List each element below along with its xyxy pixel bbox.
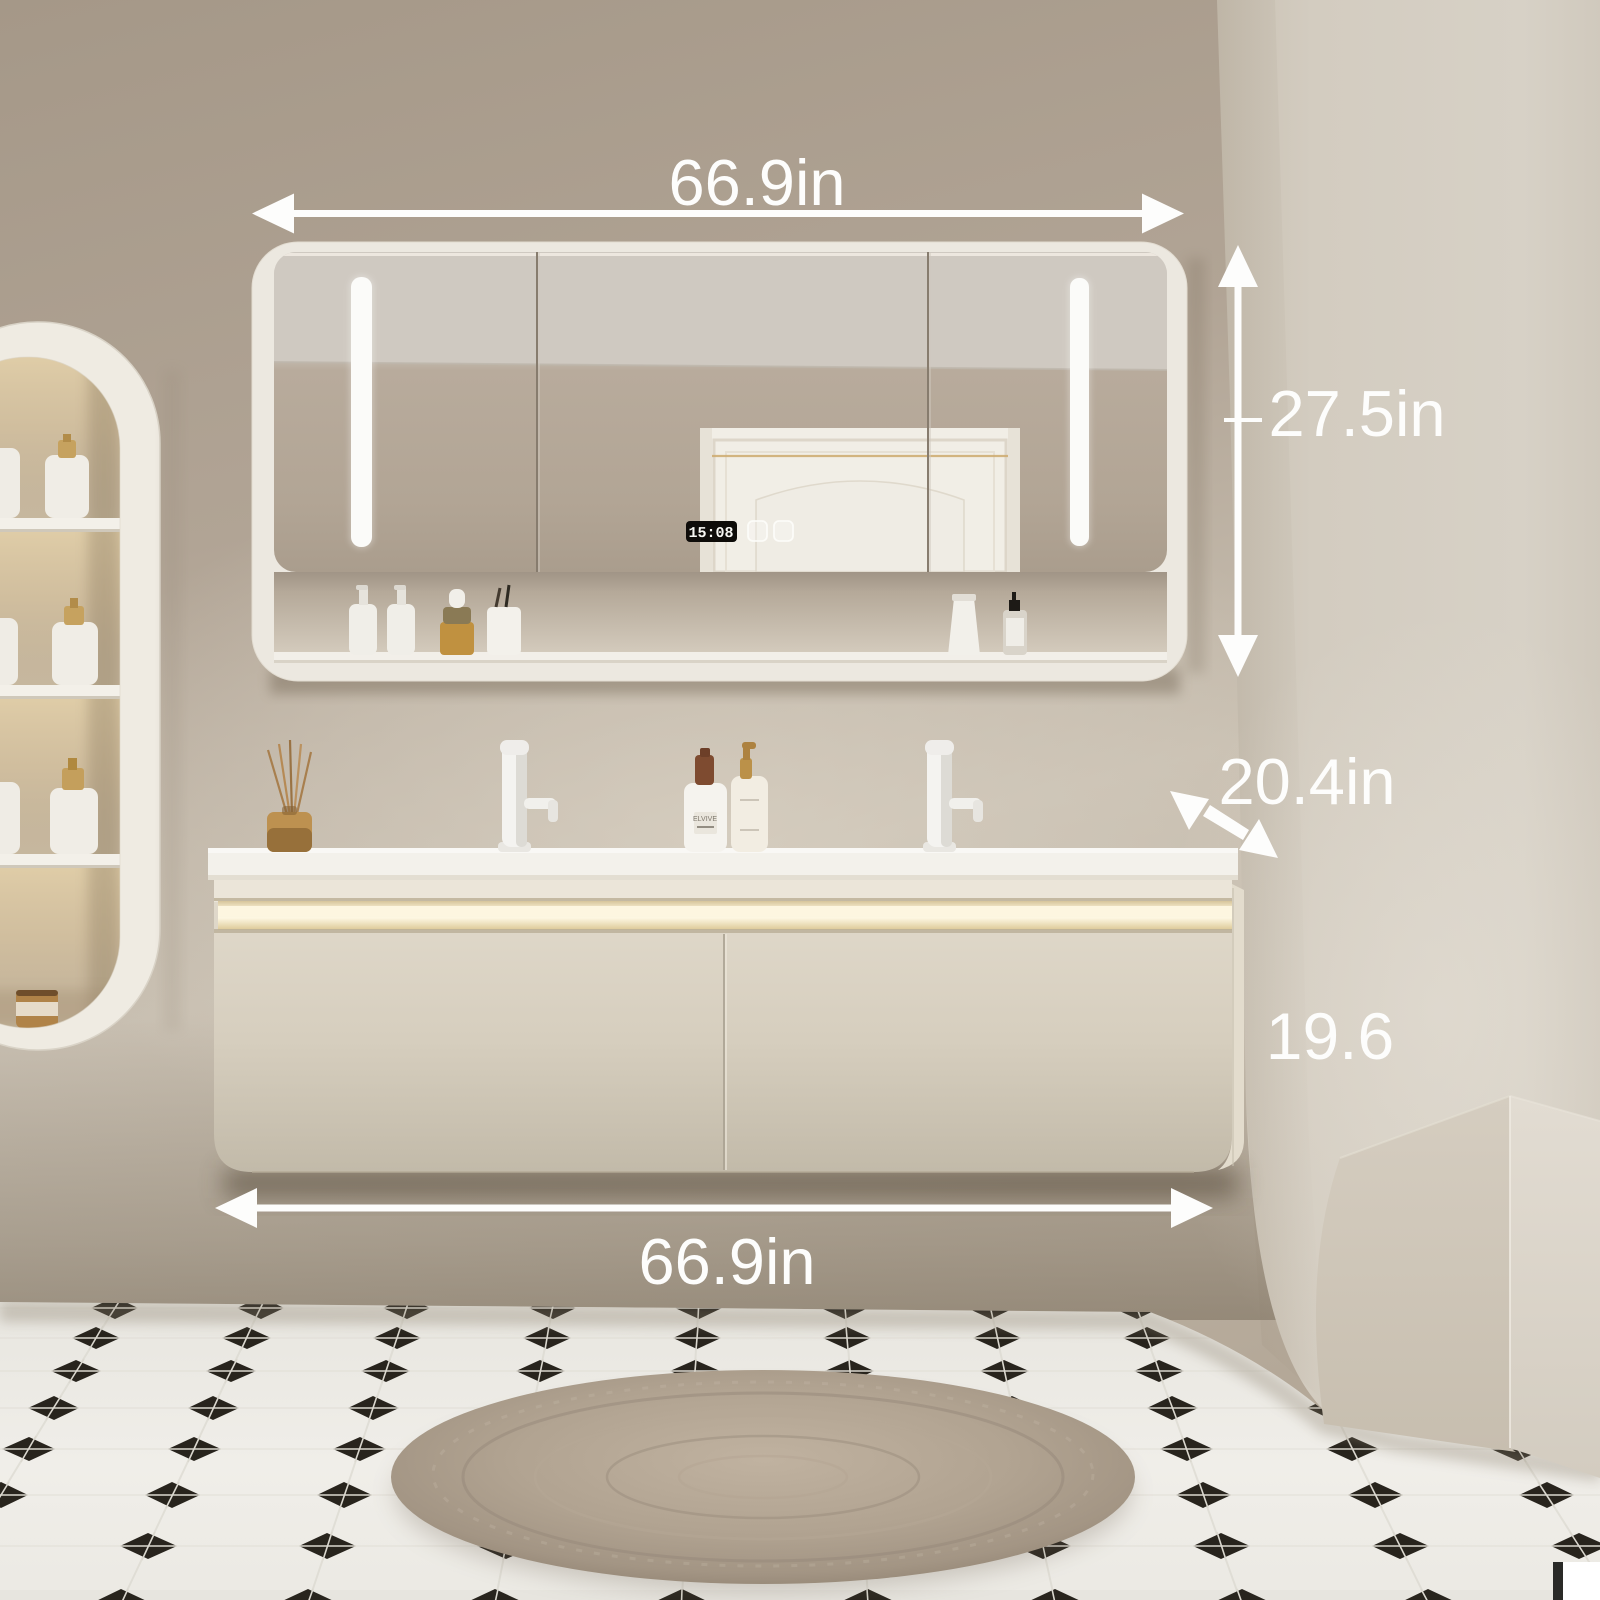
svg-text:ELVIVE: ELVIVE xyxy=(693,816,717,823)
svg-text:19.6: 19.6 xyxy=(1266,999,1394,1073)
svg-text:66.9in: 66.9in xyxy=(638,1225,815,1298)
svg-text:66.9in: 66.9in xyxy=(668,146,845,219)
svg-text:27.5in: 27.5in xyxy=(1268,377,1445,450)
svg-text:15:08: 15:08 xyxy=(688,525,733,542)
svg-text:20.4in: 20.4in xyxy=(1218,745,1395,818)
